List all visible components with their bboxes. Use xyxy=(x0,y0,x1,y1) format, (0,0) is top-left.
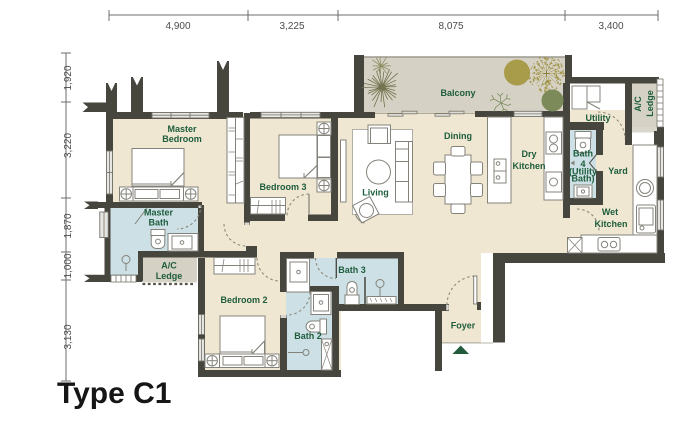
svg-text:Dry: Dry xyxy=(521,149,536,159)
svg-text:Balcony: Balcony xyxy=(440,88,475,98)
svg-text:Ledge: Ledge xyxy=(645,90,655,117)
svg-text:Kitchen: Kitchen xyxy=(594,219,627,229)
svg-text:Type C1: Type C1 xyxy=(57,377,171,410)
svg-text:1,920: 1,920 xyxy=(63,65,74,90)
svg-text:Bath: Bath xyxy=(573,149,593,159)
svg-text:Bath 2: Bath 2 xyxy=(294,331,322,341)
svg-text:Bath): Bath) xyxy=(572,174,595,184)
svg-text:Yard: Yard xyxy=(608,166,628,176)
svg-text:Bedroom: Bedroom xyxy=(162,134,202,144)
svg-text:1,870: 1,870 xyxy=(63,213,74,238)
svg-text:Ledge: Ledge xyxy=(156,271,183,281)
svg-text:Dining: Dining xyxy=(444,131,472,141)
svg-text:A/C: A/C xyxy=(633,96,643,112)
svg-text:Master: Master xyxy=(167,124,197,134)
svg-text:8,075: 8,075 xyxy=(438,21,463,32)
svg-text:1,000: 1,000 xyxy=(63,253,74,278)
svg-text:Bath: Bath xyxy=(149,218,169,228)
svg-text:A/C: A/C xyxy=(161,261,177,271)
svg-text:3,225: 3,225 xyxy=(279,21,304,32)
svg-text:3,220: 3,220 xyxy=(63,133,74,158)
svg-text:Wet: Wet xyxy=(602,207,618,217)
svg-text:3,130: 3,130 xyxy=(63,324,74,349)
svg-text:Bedroom 2: Bedroom 2 xyxy=(220,295,267,305)
svg-text:Living: Living xyxy=(362,188,389,198)
svg-text:Foyer: Foyer xyxy=(451,321,476,331)
svg-text:Bath 3: Bath 3 xyxy=(338,265,366,275)
svg-text:Utility: Utility xyxy=(585,113,610,123)
svg-text:Bedroom 3: Bedroom 3 xyxy=(259,182,306,192)
svg-text:Master: Master xyxy=(144,208,174,218)
svg-text:Kitchen: Kitchen xyxy=(512,161,545,171)
svg-text:4,900: 4,900 xyxy=(165,21,190,32)
svg-text:3,400: 3,400 xyxy=(598,21,623,32)
